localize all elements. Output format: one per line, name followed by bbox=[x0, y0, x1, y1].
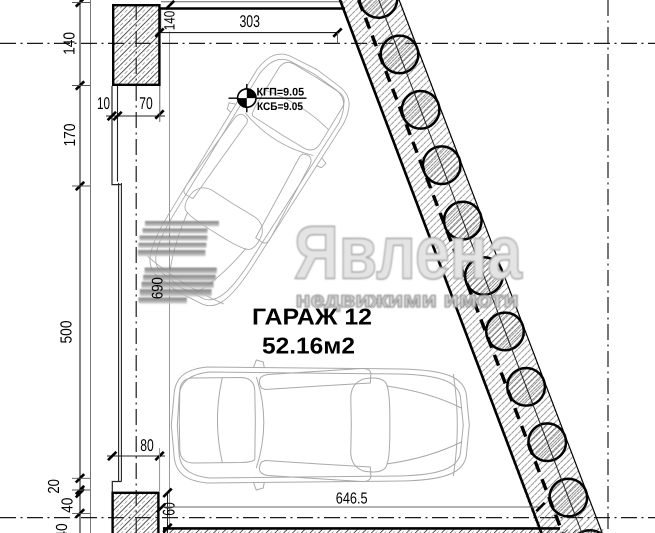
svg-text:303: 303 bbox=[239, 12, 260, 31]
svg-text:60: 60 bbox=[160, 502, 179, 516]
svg-text:70: 70 bbox=[139, 94, 153, 113]
svg-text:КГП=9.05: КГП=9.05 bbox=[257, 86, 305, 98]
svg-text:140: 140 bbox=[62, 32, 79, 55]
svg-text:Явлена: Явлена bbox=[294, 211, 523, 296]
svg-text:20: 20 bbox=[46, 479, 63, 494]
svg-text:КСБ=9.05: КСБ=9.05 bbox=[257, 101, 303, 113]
svg-text:ГАРАЖ 12: ГАРАЖ 12 bbox=[252, 304, 372, 330]
svg-text:140: 140 bbox=[162, 11, 179, 31]
svg-text:500: 500 bbox=[59, 320, 76, 343]
svg-text:646.5: 646.5 bbox=[336, 490, 368, 507]
svg-text:80: 80 bbox=[140, 436, 154, 455]
svg-text:40: 40 bbox=[54, 523, 71, 533]
svg-text:10: 10 bbox=[97, 94, 110, 113]
svg-text:170: 170 bbox=[62, 123, 79, 146]
svg-text:40: 40 bbox=[59, 498, 76, 513]
svg-text:52.16м2: 52.16м2 bbox=[262, 333, 355, 359]
svg-text:690: 690 bbox=[150, 277, 167, 299]
